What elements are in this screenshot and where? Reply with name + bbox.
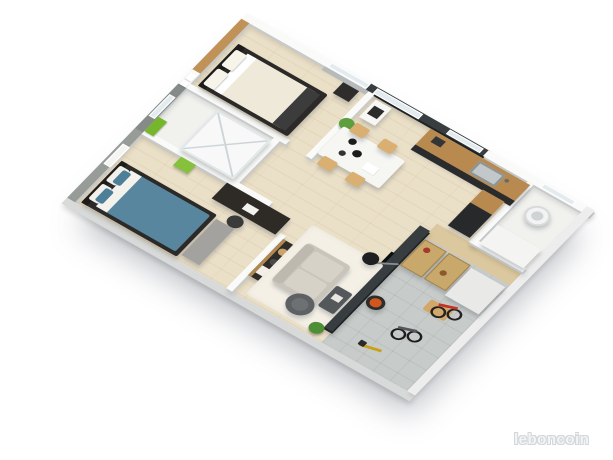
floorplan-render: leboncoin (0, 0, 613, 460)
apartment-plan (62, 13, 595, 401)
leboncoin-watermark: leboncoin (514, 431, 589, 448)
